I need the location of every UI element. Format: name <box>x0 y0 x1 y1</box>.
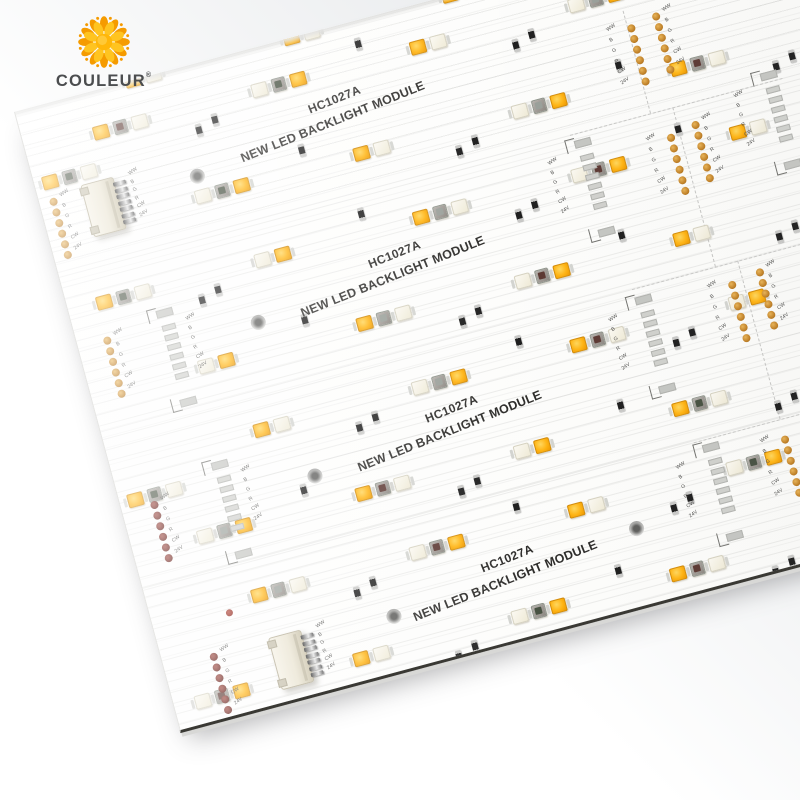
footprint-pad <box>768 95 783 104</box>
brand-name: COULEUR® <box>42 72 166 91</box>
footprint-pad <box>174 371 189 380</box>
footprint-pad <box>169 351 184 360</box>
footprint-pad <box>164 332 179 341</box>
connector-metal-tab <box>267 639 278 649</box>
footprint-pad <box>219 484 234 493</box>
footprint-pad <box>766 85 781 94</box>
footprint-pad <box>217 474 232 483</box>
footprint-pad <box>710 466 725 475</box>
footprint-pad <box>172 361 187 370</box>
footprint-pad <box>585 172 600 181</box>
footprint-pad <box>640 309 655 318</box>
footprint-pad <box>587 181 602 190</box>
footprint-pad <box>222 494 237 503</box>
footprint-pad <box>776 124 791 133</box>
product-photo-scene: HC1027ANEW LED BACKLIGHT MODULEHC1027ANE… <box>0 0 800 800</box>
footprint-pad <box>161 323 176 332</box>
footprint-pad <box>771 104 786 113</box>
footprint-pad <box>718 495 733 504</box>
footprint-pad <box>713 476 728 485</box>
sunflower-icon <box>76 14 132 70</box>
connector-metal-tab <box>277 678 288 688</box>
brand-name-text: COULEUR <box>56 72 146 90</box>
footprint-pad <box>653 357 668 366</box>
footprint-pad <box>716 486 731 495</box>
footprint-pad <box>773 114 788 123</box>
footprint-pad <box>167 342 182 351</box>
footprint-pad <box>643 319 658 328</box>
footprint-pad <box>224 503 239 512</box>
solder-pad <box>437 0 442 3</box>
footprint-pad <box>227 513 242 522</box>
registered-mark: ® <box>146 72 152 79</box>
footprint-pad <box>708 457 723 466</box>
footprint-pad <box>648 338 663 347</box>
footprint-pad <box>779 133 794 142</box>
footprint-pad <box>230 523 245 532</box>
footprint-pad <box>593 201 608 210</box>
footprint-pad <box>645 328 660 337</box>
footprint-pad <box>590 191 605 200</box>
connector-metal-tab <box>89 225 100 235</box>
footprint-pad <box>721 505 736 514</box>
footprint-pad <box>651 348 666 357</box>
brand-logo: COULEUR® <box>42 14 166 91</box>
footprint-pad <box>582 162 597 171</box>
connector-metal-tab <box>79 186 90 196</box>
footprint-pad <box>580 152 595 161</box>
